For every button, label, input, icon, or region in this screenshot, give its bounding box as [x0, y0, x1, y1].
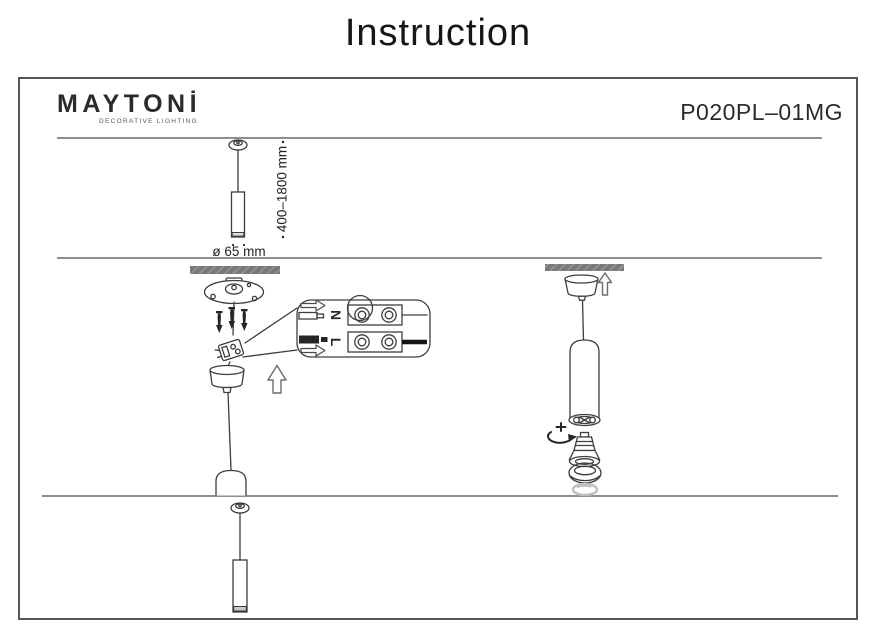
- page-title: Instruction: [0, 12, 876, 55]
- callout-line: [245, 308, 297, 343]
- ceiling-bar: [545, 264, 624, 271]
- installation-diagram: ø 65 mm 400–1800 mm: [20, 79, 856, 618]
- pendant-canopy: [229, 140, 247, 150]
- diameter-dimension: ø 65 mm: [212, 244, 265, 259]
- up-arrow-icon: [599, 273, 612, 295]
- lamp-cylinder: [570, 340, 599, 420]
- up-arrow-icon: [268, 366, 286, 394]
- suspension-wire: [583, 300, 584, 340]
- lamp-cylinder: [232, 192, 245, 237]
- pendant-canopy: [231, 503, 249, 513]
- overview-figure: ø 65 mm 400–1800 mm: [212, 140, 289, 259]
- callout-line: [243, 350, 297, 357]
- screw-icon: [216, 311, 223, 333]
- neutral-label: N: [328, 310, 344, 320]
- neutral-wire: [299, 313, 324, 320]
- suspension-wire: [233, 302, 234, 335]
- height-range-label: 400–1800 mm: [275, 146, 290, 232]
- suspension-wire: [228, 393, 231, 471]
- lamp-cylinder: [233, 560, 247, 612]
- step2-figure: [545, 264, 624, 495]
- terminal-screw: [382, 308, 396, 322]
- mounting-plate: [205, 278, 264, 304]
- wiring-detail: N L: [297, 296, 430, 358]
- trim-ring: [569, 463, 601, 483]
- instruction-sheet: MAYTONİ DECORATIVE LIGHTING P020PL–01MG: [18, 77, 858, 620]
- rotate-arrow-icon: [548, 423, 577, 443]
- live-label: L: [328, 338, 344, 347]
- step1-figure: [190, 266, 297, 496]
- trim-ring-ghost: [573, 484, 597, 495]
- diameter-label: ø 65 mm: [212, 244, 265, 259]
- lamp-top-partial: [216, 471, 246, 496]
- canopy-cup: [565, 275, 598, 300]
- terminal-screw: [382, 335, 396, 349]
- socket-face: [569, 415, 600, 426]
- height-dimension: 400–1800 mm: [275, 141, 290, 238]
- screw-icon: [241, 309, 248, 331]
- instruction-page: Instruction MAYTONİ DECORATIVE LIGHTING …: [0, 0, 876, 642]
- final-figure: [231, 503, 249, 612]
- ceiling-bar: [190, 266, 280, 274]
- terminal-block: [214, 339, 244, 362]
- terminal-screw: [355, 335, 369, 349]
- canopy-cup: [210, 366, 244, 393]
